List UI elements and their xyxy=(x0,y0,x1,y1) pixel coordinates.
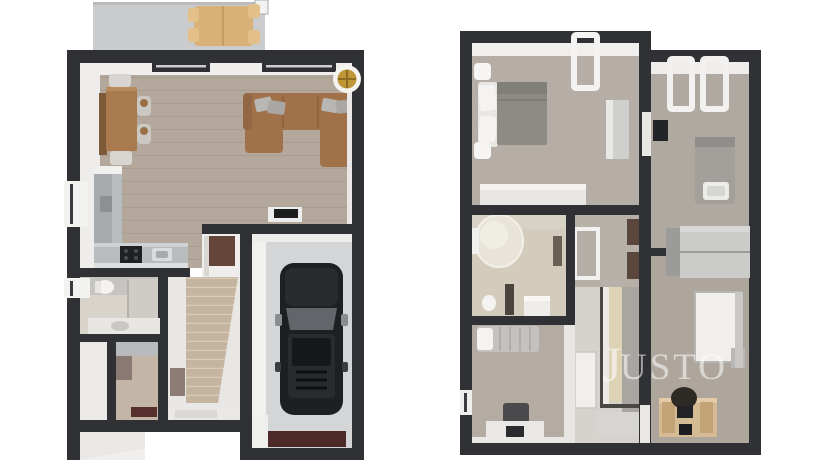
svg-text:USTO: USTO xyxy=(620,347,728,388)
svg-text:J: J xyxy=(602,336,621,392)
